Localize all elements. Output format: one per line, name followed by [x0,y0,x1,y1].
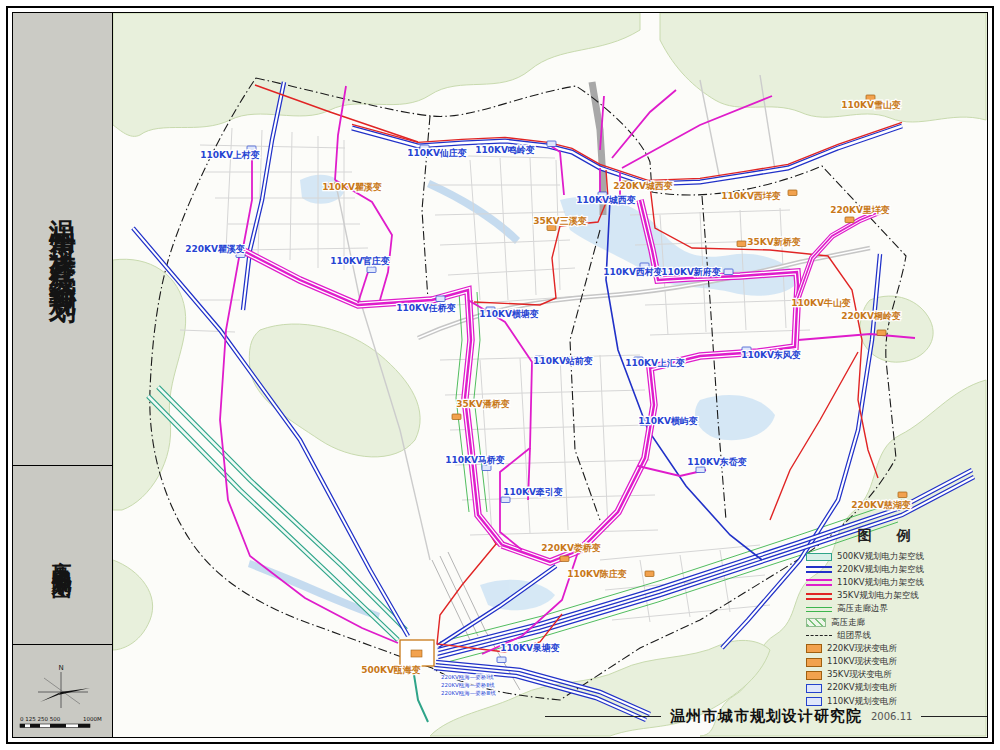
legend-item: 110KV现状变电所 [792,656,986,669]
line-name-label: 220KV瓯海—娄桥Ⅲ线 [441,690,496,697]
substation-label: 220KV城西变 [613,180,673,191]
substation-label: 110KV雪山变 [841,99,901,110]
svg-text:0 125 250 500: 0 125 250 500 [20,716,61,722]
substation-label: 110KV城西变 [576,194,636,205]
substation-label: 500KV瓯海变 [361,664,421,675]
sheet-title-box: 温州市三溪片管线综合规划 [13,13,112,466]
substation-label: 110KV东风变 [741,349,801,360]
legend-swatch-220kv-planned-substation [806,684,822,693]
substation-label: 220KV里垟变 [830,204,890,215]
compass-rose-icon: N [32,662,94,712]
substation-label: 110KV横屿变 [638,415,698,426]
substation-label: 110KV官庄变 [330,255,390,266]
legend-item: 500KV规划电力架空线 [792,550,986,563]
legend-item: 220KV规划电力架空线 [792,563,986,576]
substation-label: 110KV牛山变 [791,297,851,308]
legend-item: 110KV规划电力架空线 [792,576,986,589]
substation-label: 35KV新桥变 [747,236,800,247]
legend-swatch-corridor-edge [806,607,832,612]
substation-label: 220KV慈湖变 [851,499,911,510]
substation-label: 110KV西垟变 [721,190,781,201]
substation-label: 110KV上村变 [200,149,260,160]
substation-label: 110KV西村变 [603,266,663,277]
line-name-label: 220KV瓯海—娄桥Ⅰ线 [441,674,494,681]
legend-item: 高压走廊边界 [792,603,986,616]
legend-swatch-35kv-existing-substation [806,671,822,680]
line-name-label: 220KV瓯海—娄桥Ⅱ线 [441,682,495,689]
substation-label: 110KV站前变 [533,355,593,366]
substation-label: 110KV东岙变 [687,456,747,467]
sheet-subtitle: 高压电力规划图 [49,545,76,566]
substation-label: 35KV三溪变 [533,215,586,226]
ouhai-substation-symbol [400,640,434,666]
planning-map-sheet: 温州市三溪片管线综合规划 高压电力规划图 N 0 125 250 500 100… [0,0,1000,750]
plan-date: 2006.11 [871,711,912,722]
substation-label: 35KV潘桥变 [456,398,509,409]
compass-scale-box: N 0 125 250 500 1000M [13,645,112,737]
substation-label: 220KV瞿溪变 [185,243,245,254]
substation-label: 110KV仙庄变 [407,147,467,158]
svg-text:N: N [58,664,63,672]
legend-title: 图 例 [792,527,986,545]
substation-label: 220KV娄桥变 [541,542,601,553]
legend-swatch-220kv-existing-substation [806,644,822,653]
legend-swatch-110kv-existing-substation [806,658,822,667]
footer-rule-left [545,716,661,718]
sheet-title: 温州市三溪片管线综合规划 [45,197,81,281]
substation-label: 110KV上汇变 [625,357,685,368]
substation-label: 110KV瞿溪变 [322,181,382,192]
legend-item: 35KV现状变电所 [792,669,986,682]
legend-item: 35KV规划电力架空线 [792,590,986,603]
legend-swatch-220kv-line [806,566,832,573]
legend: 图 例 500KV规划电力架空线 220KV规划电力架空线 110KV规划电力架… [792,527,986,708]
substation-label: 110KV牵引变 [503,486,563,497]
legend-swatch-35kv-line [806,593,832,600]
legend-swatch-110kv-line [806,579,832,586]
substation-label: 220KV桐岭变 [841,310,901,321]
title-block: 温州市城市规划设计研究院 2006.11 [545,707,987,726]
substation-label: 110KV任桥变 [396,302,456,313]
institute-name: 温州市城市规划设计研究院 [670,707,862,726]
legend-swatch-district-boundary [806,635,832,636]
svg-text:1000M: 1000M [83,716,102,722]
footer-rule-right [921,716,987,718]
legend-item: 220KV规划变电所 [792,682,986,695]
title-sidebar: 温州市三溪片管线综合规划 高压电力规划图 N 0 125 250 500 100… [13,13,113,737]
line-name-labels: 220KV瓯海—娄桥Ⅰ线 220KV瓯海—娄桥Ⅱ线 220KV瓯海—娄桥Ⅲ线 [441,674,496,697]
legend-item: 组团界线 [792,629,986,642]
legend-item: 高压走廊 [792,616,986,629]
substation-label: 110KV陈庄变 [567,568,627,579]
substation-label: 110KV新府变 [661,266,721,277]
legend-swatch-corridor [806,618,826,627]
substation-label: 110KV马桥变 [445,454,505,465]
substation-label: 110KV泉塘变 [500,642,560,653]
scale-bar: 0 125 250 500 1000M [19,715,107,732]
legend-item: 220KV现状变电所 [792,642,986,655]
sheet-subtitle-box: 高压电力规划图 [13,466,112,645]
legend-swatch-110kv-planned-substation [806,697,822,706]
legend-swatch-500kv-line [806,553,832,561]
substation-label: 110KV鸣岭变 [475,144,535,155]
substation-label: 110KV横塘变 [479,308,539,319]
